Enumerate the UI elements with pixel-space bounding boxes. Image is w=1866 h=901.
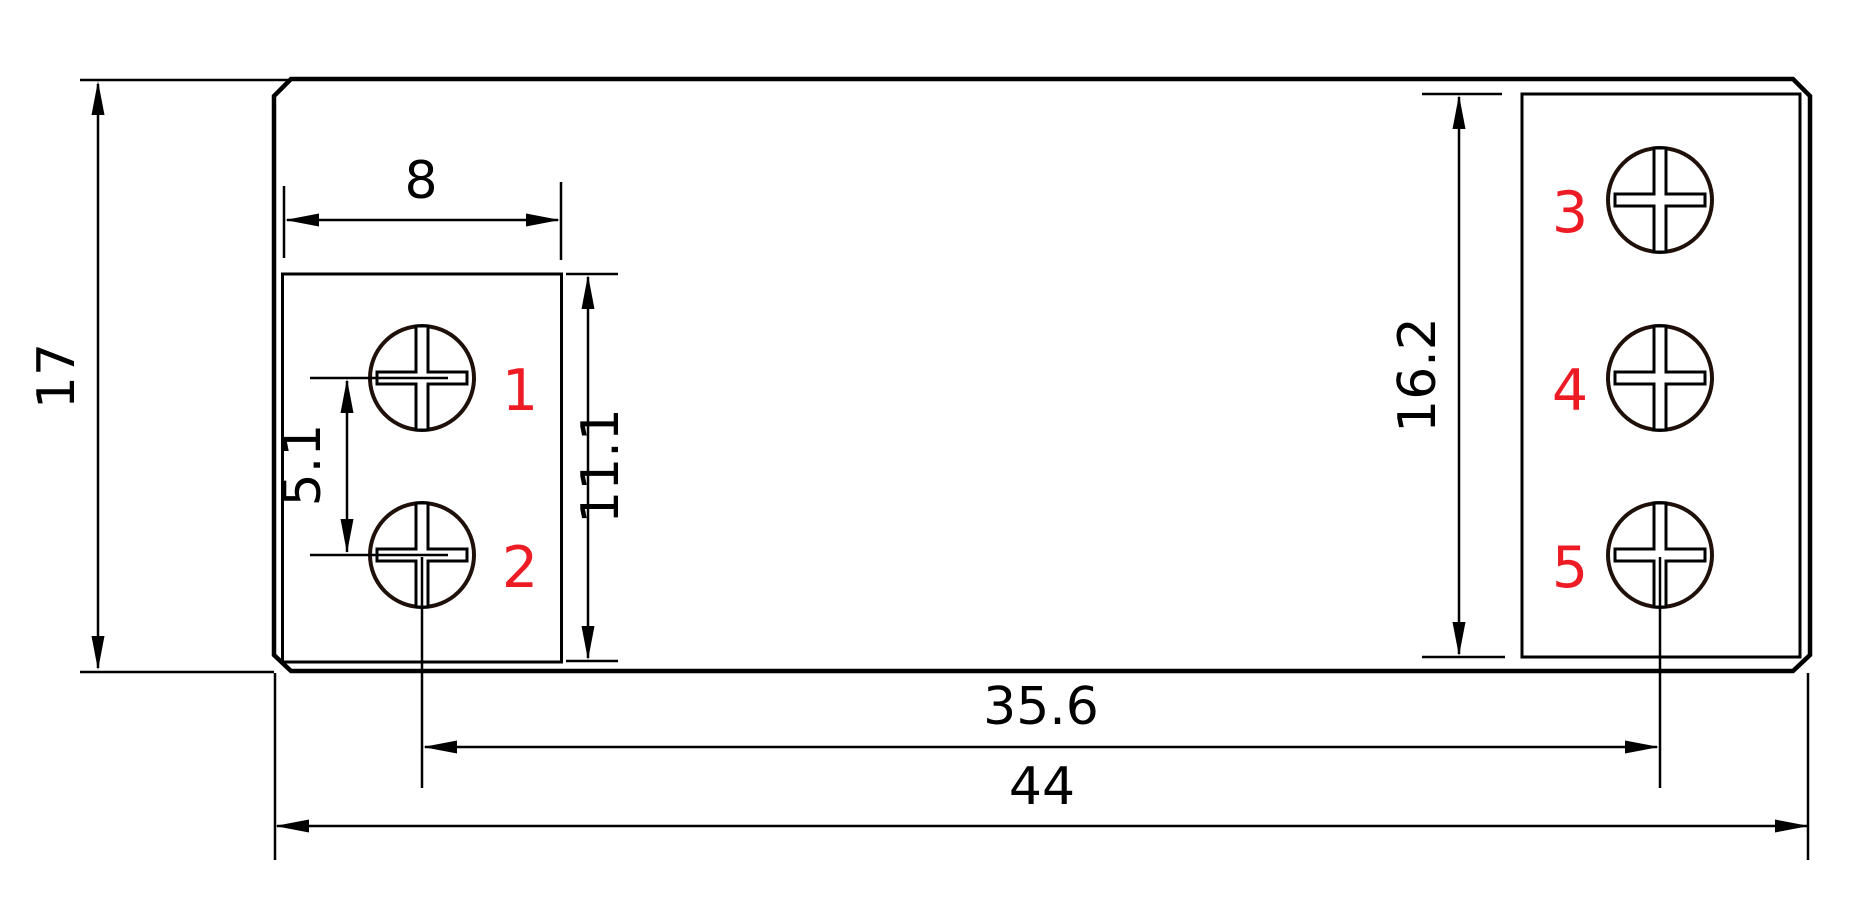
technical-drawing-canvas: 17 8 5.1 11.1 16.2 — [0, 0, 1866, 901]
terminal-block-dimension-drawing: 17 8 5.1 11.1 16.2 — [0, 0, 1866, 901]
dimension-label-left-screw-pitch: 5.1 — [273, 424, 333, 507]
terminal-number-label-1: 1 — [502, 358, 538, 424]
screw-terminal-3 — [1608, 148, 1712, 252]
dimension-overall-height — [80, 80, 291, 672]
terminal-number-label-5: 5 — [1552, 535, 1588, 601]
terminal-number-label-4: 4 — [1552, 358, 1588, 424]
dimension-label-overall-width: 44 — [1009, 757, 1075, 817]
dimension-label-left-block-height: 11.1 — [571, 408, 631, 524]
arrowhead-left-icon — [275, 820, 309, 833]
arrowhead-down-icon — [92, 636, 105, 670]
arrowhead-right-icon — [1775, 820, 1809, 833]
terminal-number-label-2: 2 — [502, 535, 538, 601]
dimension-label-screw-center-span: 35.6 — [983, 677, 1099, 737]
arrowhead-up-icon — [92, 81, 105, 115]
screw-terminal-4 — [1608, 326, 1712, 430]
arrowhead-right-icon — [1625, 741, 1659, 754]
dimension-label-overall-height: 17 — [27, 343, 87, 409]
dimension-label-left-block-width: 8 — [404, 151, 437, 211]
arrowhead-left-icon — [423, 741, 457, 754]
terminal-number-label-3: 3 — [1552, 180, 1588, 246]
dimension-label-right-block-height: 16.2 — [1388, 317, 1448, 433]
